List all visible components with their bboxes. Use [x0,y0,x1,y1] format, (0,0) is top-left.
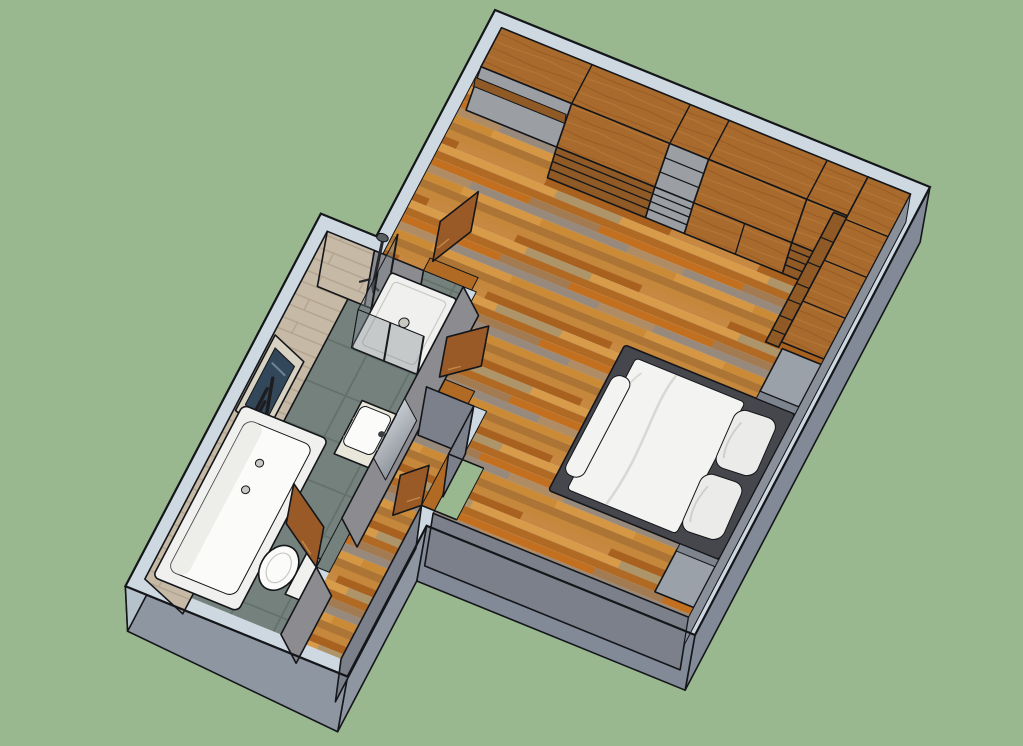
scene-svg [0,0,1023,746]
viewport-3d[interactable] [0,0,1023,746]
screenshot-root: { "scene": { "description": "3D SketchUp… [0,0,1023,746]
